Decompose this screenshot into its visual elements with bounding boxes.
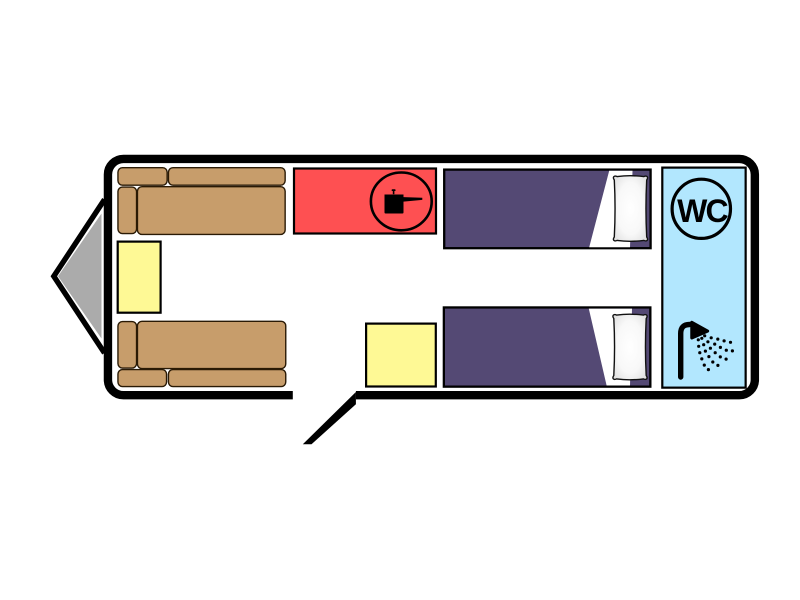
svg-text:WC: WC xyxy=(677,193,728,229)
